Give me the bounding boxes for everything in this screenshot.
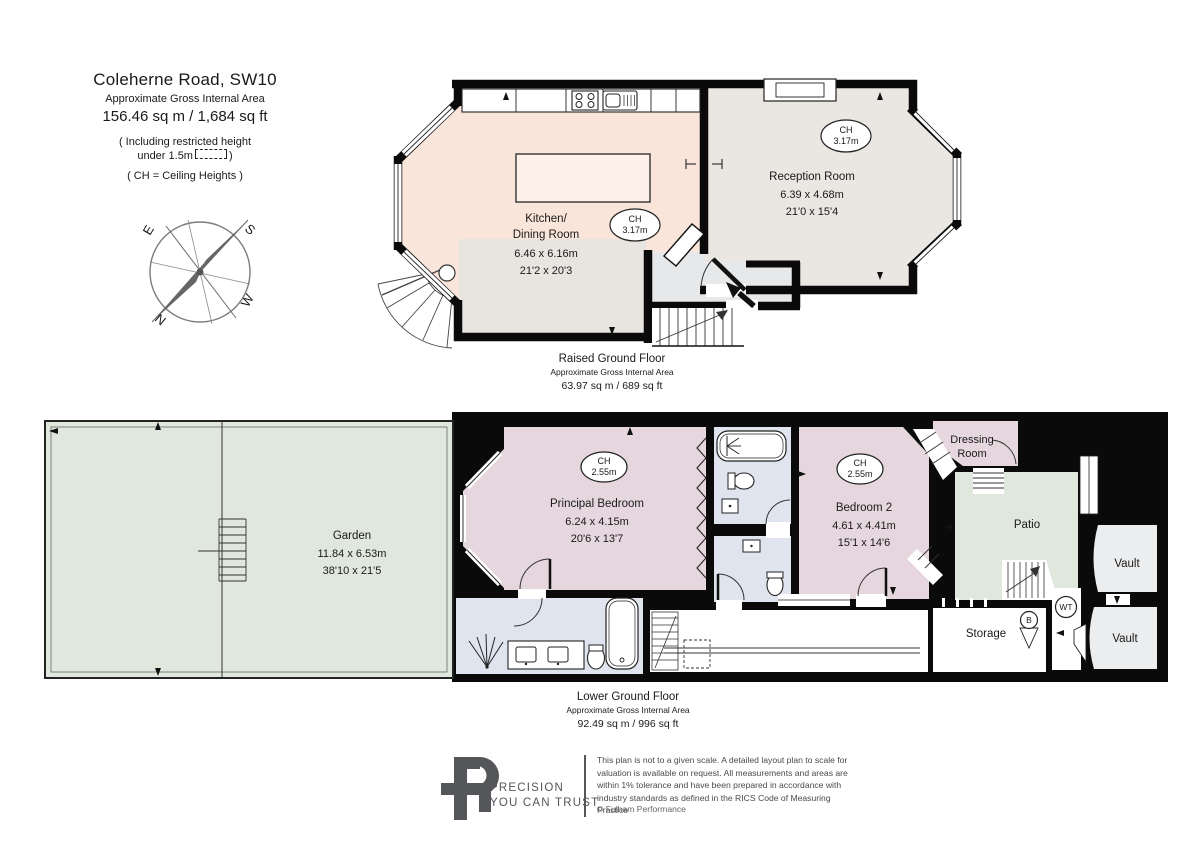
patio-rear-door (1080, 456, 1098, 514)
storage-label: Storage (966, 628, 1006, 640)
reception-ch-badge: CH 3.17m (821, 120, 871, 152)
patio-label: Patio (1014, 519, 1040, 531)
raised-ground-floor-plan: CH 3.17m Kitchen/ Dining Room 6.46 x 6.1… (378, 79, 959, 348)
fireplace-icon (764, 79, 836, 101)
svg-text:Garden: Garden (333, 530, 371, 542)
svg-text:Principal Bedroom: Principal Bedroom (550, 498, 644, 510)
bedroom2-ch-badge: CH 2.55m (837, 454, 883, 484)
svg-text:4.61 x 4.41m: 4.61 x 4.41m (832, 520, 896, 532)
gia-label: Approximate Gross Internal Area (35, 93, 335, 105)
svg-text:6.24 x 4.15m: 6.24 x 4.15m (565, 516, 629, 528)
vault-divider-door (1106, 594, 1130, 605)
kitchen-counter (462, 89, 700, 112)
compass-east-label: E (140, 222, 157, 237)
svg-text:Room: Room (957, 448, 986, 460)
bedroom2-window (778, 594, 850, 606)
kitchen-ch-badge: CH 3.17m (610, 209, 660, 241)
vault-upper-label: Vault (1114, 558, 1140, 570)
kitchen-island (516, 154, 650, 202)
gia-value: 156.46 sq m / 1,684 sq ft (35, 108, 335, 125)
svg-text:CH: CH (854, 458, 867, 468)
brand-text: PRECISION YOU CAN TRUST (490, 781, 599, 811)
compass-north-label: N (152, 311, 169, 329)
svg-text:15'1 x 14'6: 15'1 x 14'6 (838, 537, 891, 549)
restricted-height-symbol (195, 149, 227, 159)
vault-lower-label: Vault (1112, 633, 1138, 645)
lgf-caption-subtitle: Approximate Gross Internal Area (478, 705, 778, 715)
svg-text:CH: CH (840, 125, 853, 135)
svg-text:Kitchen/: Kitchen/ (525, 213, 567, 225)
svg-text:B: B (1026, 615, 1032, 625)
brand-line1: PRECISION (490, 781, 599, 796)
lgf-caption-area: 92.49 sq m / 996 sq ft (478, 718, 778, 730)
compass-west-label: W (238, 291, 257, 310)
svg-text:3.17m: 3.17m (833, 136, 858, 146)
lower-ground-caption: Lower Ground Floor Approximate Gross Int… (478, 691, 778, 730)
toilet2-icon (588, 645, 605, 669)
dressing-landing-steps (973, 468, 1004, 494)
svg-text:21'0 x 15'4: 21'0 x 15'4 (786, 206, 839, 218)
wc-door-opening (716, 600, 742, 611)
bedroom2-door-opening (856, 594, 886, 607)
property-address: Coleherne Road, SW10 (35, 70, 335, 90)
basin-icon (722, 499, 738, 513)
bath2-icon (606, 598, 638, 669)
external-stairs (378, 265, 455, 348)
restricted-height-note: ( Including restricted height under 1.5m… (35, 135, 335, 163)
title-block: Coleherne Road, SW10 Approximate Gross I… (35, 70, 335, 182)
toilet-icon (728, 473, 754, 489)
wc-basin-icon (743, 540, 760, 552)
svg-text:3.17m: 3.17m (622, 225, 647, 235)
svg-text:20'6 x 13'7: 20'6 x 13'7 (571, 533, 624, 545)
wc-toilet-icon (767, 572, 783, 596)
rgf-stairs (652, 308, 744, 346)
ch-note: ( CH = Ceiling Heights ) (35, 170, 335, 182)
svg-text:Dining Room: Dining Room (513, 229, 579, 241)
svg-text:2.55m: 2.55m (847, 469, 872, 479)
lgf-caption-title: Lower Ground Floor (478, 691, 778, 703)
svg-text:21'2 x 20'3: 21'2 x 20'3 (520, 265, 573, 277)
svg-text:Reception Room: Reception Room (769, 171, 855, 183)
compass-rose: S E W N (140, 220, 259, 328)
footer-divider (584, 755, 586, 817)
principal-bedroom-ch-badge: CH 2.55m (581, 452, 627, 482)
restricted-note-line2: under 1.5m (137, 150, 193, 162)
raised-ground-caption: Raised Ground Floor Approximate Gross In… (462, 353, 762, 392)
lower-ground-floor-plan: B WT CH 2.55m CH 2.55m Garden 11.84 x 6. (45, 412, 1168, 682)
svg-text:6.46 x 6.16m: 6.46 x 6.16m (514, 248, 578, 260)
corridor (650, 610, 928, 672)
bathroom-door-opening (766, 522, 790, 538)
copyright-text: © Fulham Performance (597, 804, 686, 814)
garden-area (45, 421, 453, 678)
svg-text:11.84 x 6.53m: 11.84 x 6.53m (318, 548, 387, 560)
svg-text:38'10 x 21'5: 38'10 x 21'5 (323, 565, 382, 577)
brand-line2: YOU CAN TRUST (490, 796, 599, 811)
restricted-note-suffix: ) (229, 150, 233, 162)
restricted-note-line1: ( Including restricted height (119, 136, 251, 148)
rgf-caption-subtitle: Approximate Gross Internal Area (462, 367, 762, 377)
svg-text:2.55m: 2.55m (591, 467, 616, 477)
rgf-caption-area: 63.97 sq m / 689 sq ft (462, 380, 762, 392)
svg-text:CH: CH (598, 456, 611, 466)
vanity-basins-icon (508, 641, 584, 669)
rgf-caption-title: Raised Ground Floor (462, 353, 762, 365)
bathroom2-door-opening (518, 589, 546, 599)
svg-text:Dressing: Dressing (950, 434, 993, 446)
svg-text:6.39 x 4.68m: 6.39 x 4.68m (780, 189, 844, 201)
svg-text:WT: WT (1059, 602, 1072, 612)
svg-text:Bedroom 2: Bedroom 2 (836, 502, 892, 514)
bath-icon (717, 431, 786, 461)
svg-text:CH: CH (629, 214, 642, 224)
floorplan-page: S E W N (0, 0, 1200, 848)
bedroom2-label: Bedroom 2 4.61 x 4.41m 15'1 x 14'6 (832, 502, 896, 549)
